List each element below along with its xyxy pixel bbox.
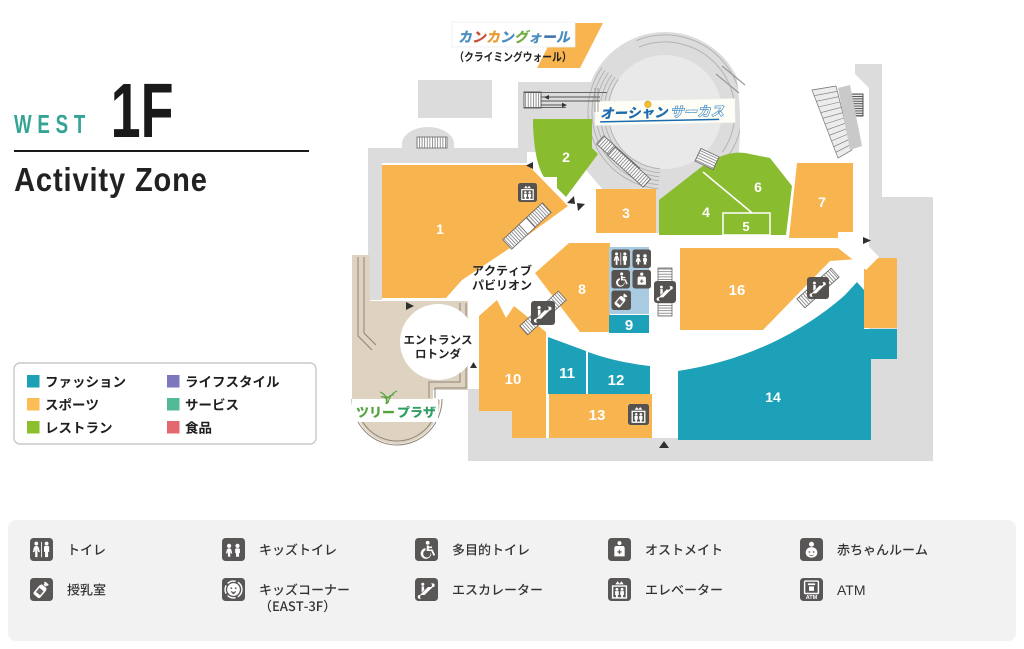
svg-text:13: 13	[589, 407, 606, 424]
svg-text:5: 5	[742, 219, 749, 234]
svg-text:1: 1	[436, 221, 444, 237]
svg-text:9: 9	[625, 317, 633, 334]
svg-text:2: 2	[562, 149, 570, 165]
svg-text:11: 11	[559, 365, 575, 382]
svg-text:10: 10	[505, 371, 522, 388]
svg-text:8: 8	[578, 281, 586, 297]
svg-text:1F: 1F	[111, 69, 174, 155]
svg-text:14: 14	[765, 389, 781, 405]
svg-text:WEST: WEST	[14, 109, 91, 139]
svg-text:6: 6	[754, 179, 762, 195]
svg-text:7: 7	[818, 194, 826, 210]
svg-text:3: 3	[622, 205, 630, 221]
svg-text:Activity Zone: Activity Zone	[14, 161, 208, 198]
svg-text:ATM: ATM	[837, 582, 866, 598]
svg-text:16: 16	[729, 282, 746, 299]
svg-text:12: 12	[608, 372, 625, 389]
svg-text:4: 4	[702, 204, 710, 220]
